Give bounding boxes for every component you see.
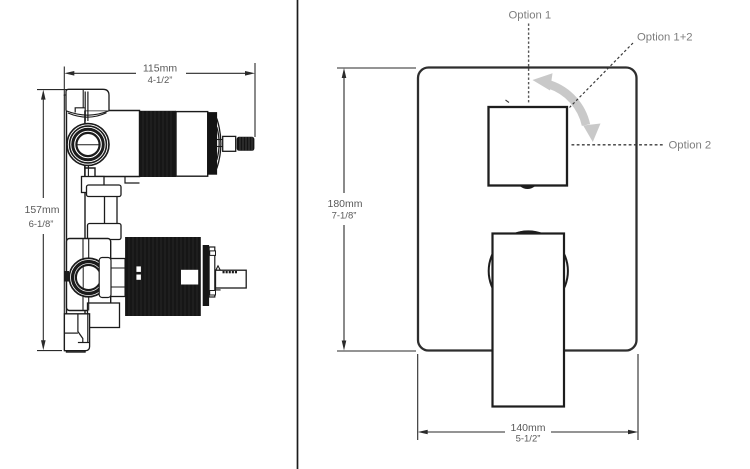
svg-text:5-1/2”: 5-1/2” [516,434,541,445]
svg-text:Option 2: Option 2 [669,140,712,152]
svg-text:Option 1+2: Option 1+2 [637,32,693,44]
svg-text:7-1/8”: 7-1/8” [332,211,357,222]
svg-text:115mm: 115mm [143,63,177,75]
svg-text:6-1/8”: 6-1/8” [29,219,54,230]
svg-text:140mm: 140mm [510,422,545,434]
svg-text:180mm: 180mm [327,198,362,210]
svg-text:4-1/2”: 4-1/2” [148,75,173,86]
svg-text:157mm: 157mm [24,204,59,216]
svg-text:Option 1: Option 1 [509,10,552,22]
